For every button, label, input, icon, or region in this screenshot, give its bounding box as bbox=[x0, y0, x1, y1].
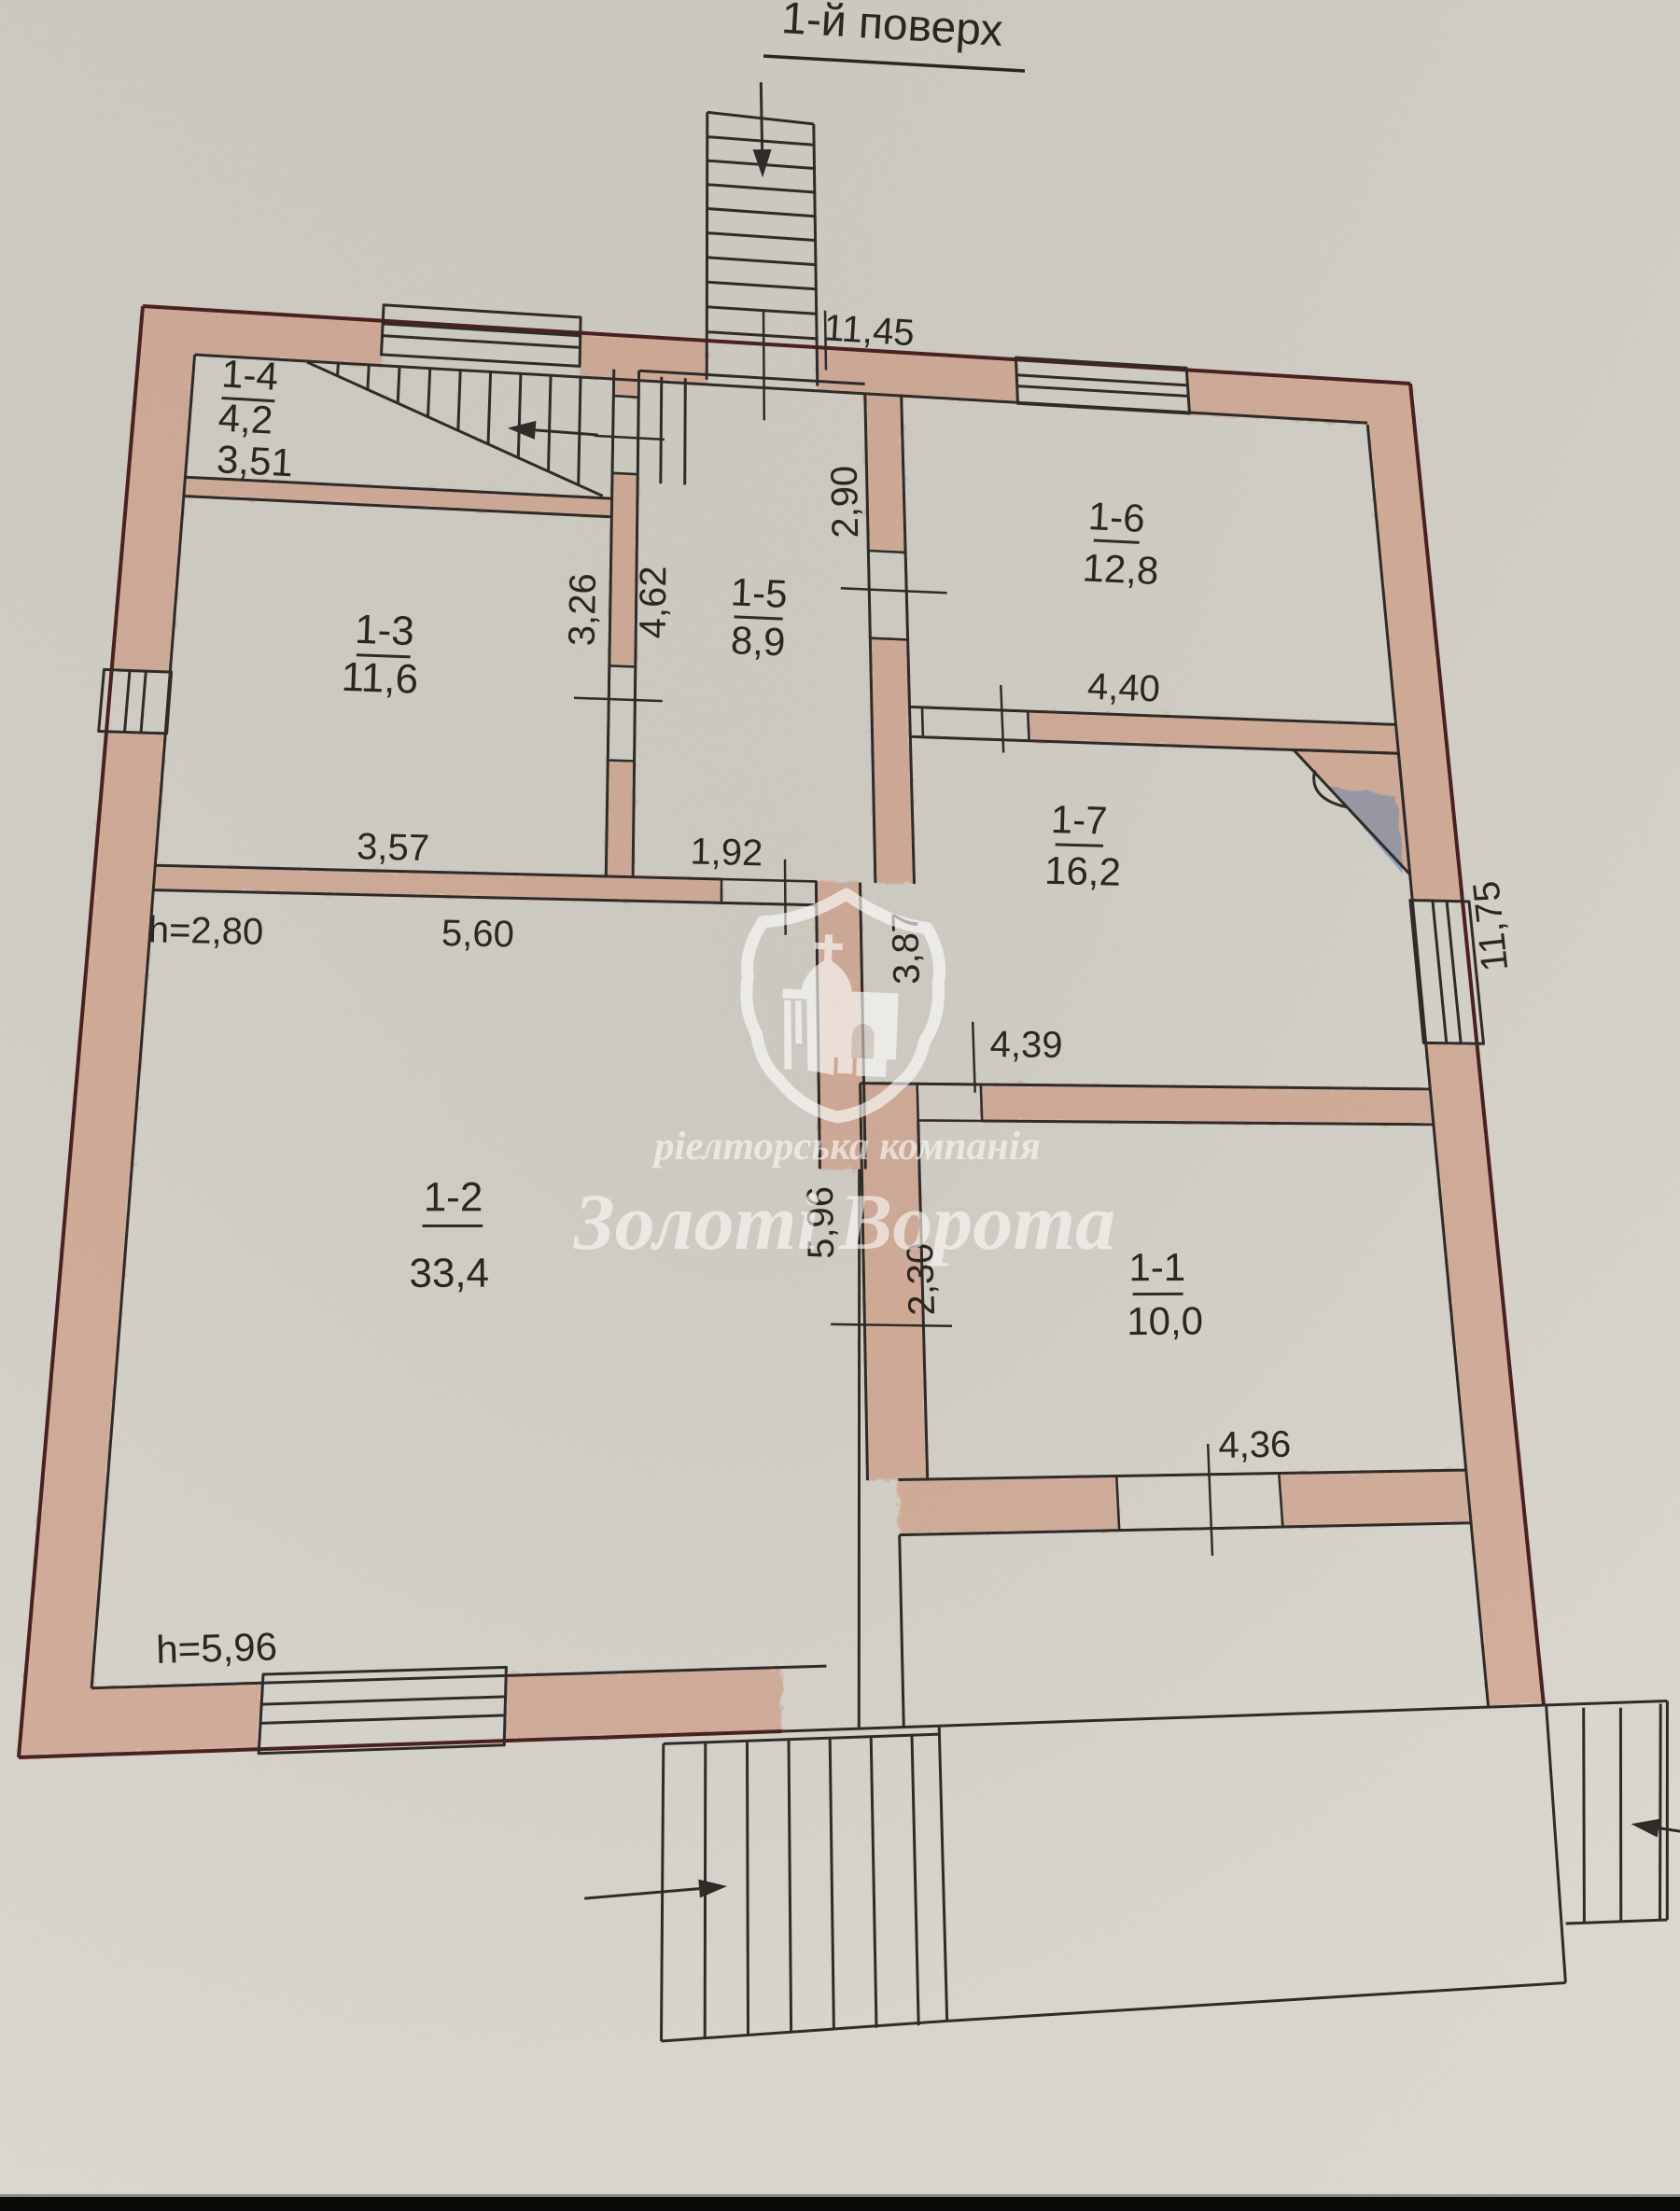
svg-text:11,6: 11,6 bbox=[341, 654, 419, 703]
svg-text:3,51: 3,51 bbox=[216, 437, 294, 484]
svg-text:10,0: 10,0 bbox=[1127, 1299, 1203, 1344]
svg-text:2,90: 2,90 bbox=[824, 465, 867, 539]
svg-text:1-3: 1-3 bbox=[354, 607, 414, 654]
svg-text:1-1: 1-1 bbox=[1128, 1245, 1185, 1289]
svg-text:h=5,96: h=5,96 bbox=[156, 1624, 278, 1672]
svg-text:4,2: 4,2 bbox=[217, 396, 274, 442]
svg-text:5,60: 5,60 bbox=[441, 913, 515, 956]
svg-text:3,26: 3,26 bbox=[562, 573, 604, 647]
svg-text:16,2: 16,2 bbox=[1044, 848, 1122, 894]
svg-text:1-4: 1-4 bbox=[220, 351, 279, 398]
svg-text:1-2: 1-2 bbox=[424, 1174, 483, 1220]
svg-text:1-7: 1-7 bbox=[1050, 797, 1108, 843]
svg-text:3,57: 3,57 bbox=[357, 826, 430, 869]
svg-text:8,9: 8,9 bbox=[730, 618, 786, 664]
svg-text:1-5: 1-5 bbox=[730, 569, 789, 616]
svg-text:4,40: 4,40 bbox=[1086, 666, 1160, 710]
svg-text:1-6: 1-6 bbox=[1087, 494, 1146, 540]
svg-text:4,62: 4,62 bbox=[633, 566, 675, 638]
svg-text:4,36: 4,36 bbox=[1218, 1424, 1292, 1466]
svg-text:h=2,80: h=2,80 bbox=[147, 909, 263, 952]
svg-text:Золоті Ворота: Золоті Ворота bbox=[573, 1177, 1115, 1266]
svg-text:1,92: 1,92 bbox=[690, 831, 763, 874]
svg-text:4,39: 4,39 bbox=[989, 1024, 1062, 1066]
svg-text:33,4: 33,4 bbox=[409, 1251, 489, 1296]
svg-text:11,45: 11,45 bbox=[822, 307, 916, 354]
svg-text:ріелторська компанія: ріелторська компанія bbox=[651, 1125, 1041, 1168]
svg-text:12,8: 12,8 bbox=[1082, 545, 1160, 593]
